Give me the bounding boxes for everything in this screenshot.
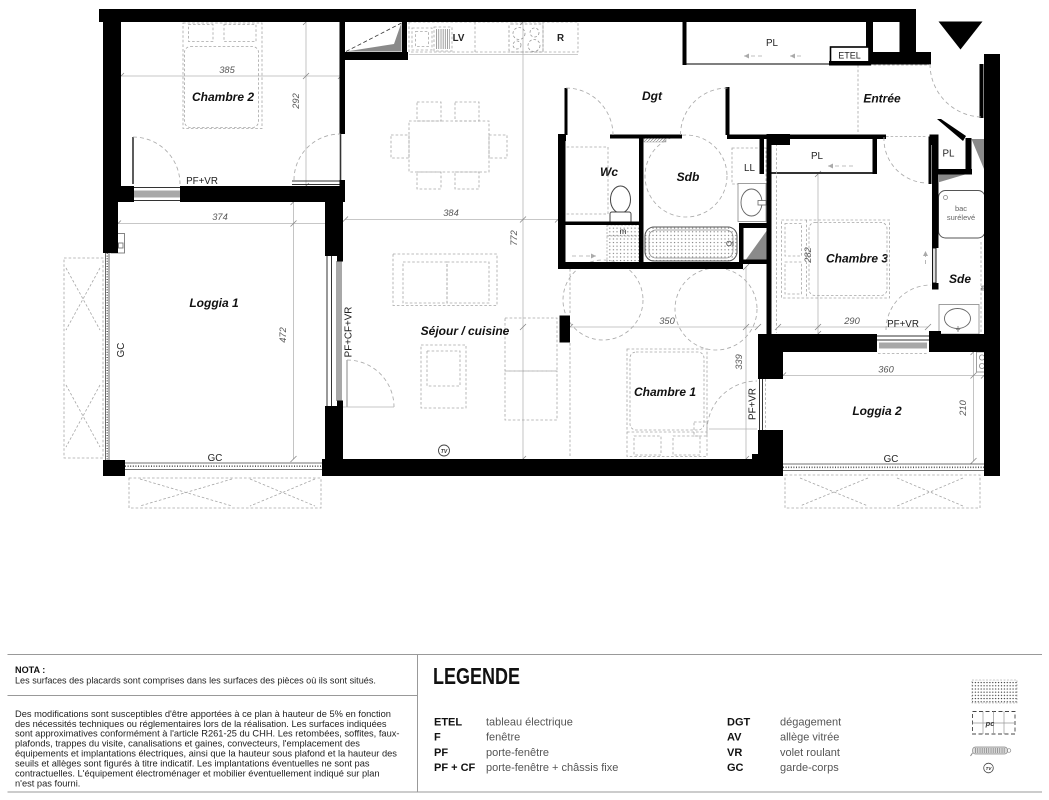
svg-text:Sde: Sde — [949, 272, 971, 286]
svg-text:339: 339 — [734, 354, 744, 370]
svg-text:ETEL: ETEL — [838, 51, 861, 61]
svg-text:472: 472 — [278, 326, 288, 342]
svg-text:GC: GC — [208, 453, 223, 464]
svg-text:282: 282 — [803, 246, 813, 263]
svg-text:F: F — [434, 732, 441, 744]
svg-text:seuils et allèges sont figurés: seuils et allèges sont figurés à titre i… — [15, 759, 370, 769]
svg-text:LEGENDE: LEGENDE — [433, 663, 520, 689]
svg-text:dégagement: dégagement — [780, 717, 841, 729]
svg-text:des nécessités techniques ou r: des nécessités techniques ou réglementai… — [15, 719, 387, 729]
svg-text:Entrée: Entrée — [863, 92, 901, 106]
svg-text:Loggia 2: Loggia 2 — [852, 404, 902, 418]
svg-text:équipements et implantations é: équipements et implantations électriques… — [15, 749, 397, 759]
svg-text:fenêtre: fenêtre — [486, 732, 520, 744]
svg-text:PF+VR: PF+VR — [186, 176, 218, 187]
svg-text:210: 210 — [958, 399, 968, 416]
svg-text:Chambre 3: Chambre 3 — [826, 252, 888, 266]
svg-text:Les surfaces des placards sont: Les surfaces des placards sont comprises… — [15, 676, 376, 686]
svg-text:GC: GC — [727, 762, 744, 774]
svg-text:360: 360 — [878, 365, 894, 375]
svg-text:R: R — [557, 33, 564, 44]
svg-text:GC: GC — [884, 454, 899, 465]
svg-text:PF + CF: PF + CF — [434, 762, 476, 774]
svg-text:contractuelles. L'équipement é: contractuelles. L'équipement électroména… — [15, 769, 380, 779]
svg-text:Chambre 2: Chambre 2 — [192, 90, 254, 104]
svg-text:PL: PL — [811, 151, 824, 162]
svg-text:Loggia 1: Loggia 1 — [189, 296, 239, 310]
svg-text:pc: pc — [985, 719, 996, 728]
svg-text:Dgt: Dgt — [642, 89, 663, 103]
svg-text:ETEL: ETEL — [434, 717, 462, 729]
svg-text:Wc: Wc — [600, 165, 618, 179]
svg-text:porte-fenêtre: porte-fenêtre — [486, 747, 549, 759]
svg-text:n'est pas fourni.: n'est pas fourni. — [15, 778, 80, 788]
svg-text:volet roulant: volet roulant — [780, 747, 840, 759]
svg-text:Chambre 1: Chambre 1 — [634, 385, 696, 399]
svg-text:m: m — [620, 227, 627, 236]
svg-text:Des modifications sont suscept: Des modifications sont susceptibles d'êt… — [15, 709, 391, 719]
svg-text:LV: LV — [453, 33, 465, 44]
svg-text:GC: GC — [116, 343, 127, 358]
svg-text:385: 385 — [219, 65, 235, 75]
svg-text:PL: PL — [766, 38, 779, 49]
svg-text:NOTA :: NOTA : — [15, 665, 45, 675]
svg-text:AV: AV — [727, 732, 742, 744]
svg-text:PF+VR: PF+VR — [887, 319, 919, 330]
svg-text:LL: LL — [744, 163, 755, 174]
svg-text:TV: TV — [986, 766, 993, 771]
svg-text:porte-fenêtre + châssis fixe: porte-fenêtre + châssis fixe — [486, 762, 618, 774]
svg-text:VR: VR — [727, 747, 742, 759]
svg-text:PF+CF+VR: PF+CF+VR — [344, 307, 355, 358]
svg-text:plafonds, trappes du visite, c: plafonds, trappes du visite, canalisatio… — [15, 739, 360, 749]
svg-text:allège vitrée: allège vitrée — [780, 732, 839, 744]
svg-text:PL: PL — [943, 149, 956, 160]
svg-text:384: 384 — [443, 208, 459, 218]
svg-text:292: 292 — [291, 92, 301, 109]
svg-text:PF+VR: PF+VR — [748, 388, 759, 420]
svg-text:374: 374 — [212, 212, 228, 222]
svg-text:PF: PF — [434, 747, 448, 759]
svg-text:772: 772 — [509, 229, 519, 245]
svg-text:surélevé: surélevé — [947, 213, 975, 222]
svg-text:Sdb: Sdb — [677, 170, 700, 184]
svg-text:bac: bac — [955, 204, 967, 213]
svg-text:290: 290 — [843, 316, 860, 326]
svg-text:DGT: DGT — [727, 717, 751, 729]
svg-text:TV: TV — [441, 449, 448, 455]
svg-text:350: 350 — [659, 316, 675, 326]
svg-text:garde-corps: garde-corps — [780, 762, 839, 774]
svg-text:Séjour / cuisine: Séjour / cuisine — [421, 324, 510, 338]
svg-text:tableau électrique: tableau électrique — [486, 717, 573, 729]
svg-text:sont approximatives conforméme: sont approximatives conformément à l'art… — [15, 729, 400, 739]
